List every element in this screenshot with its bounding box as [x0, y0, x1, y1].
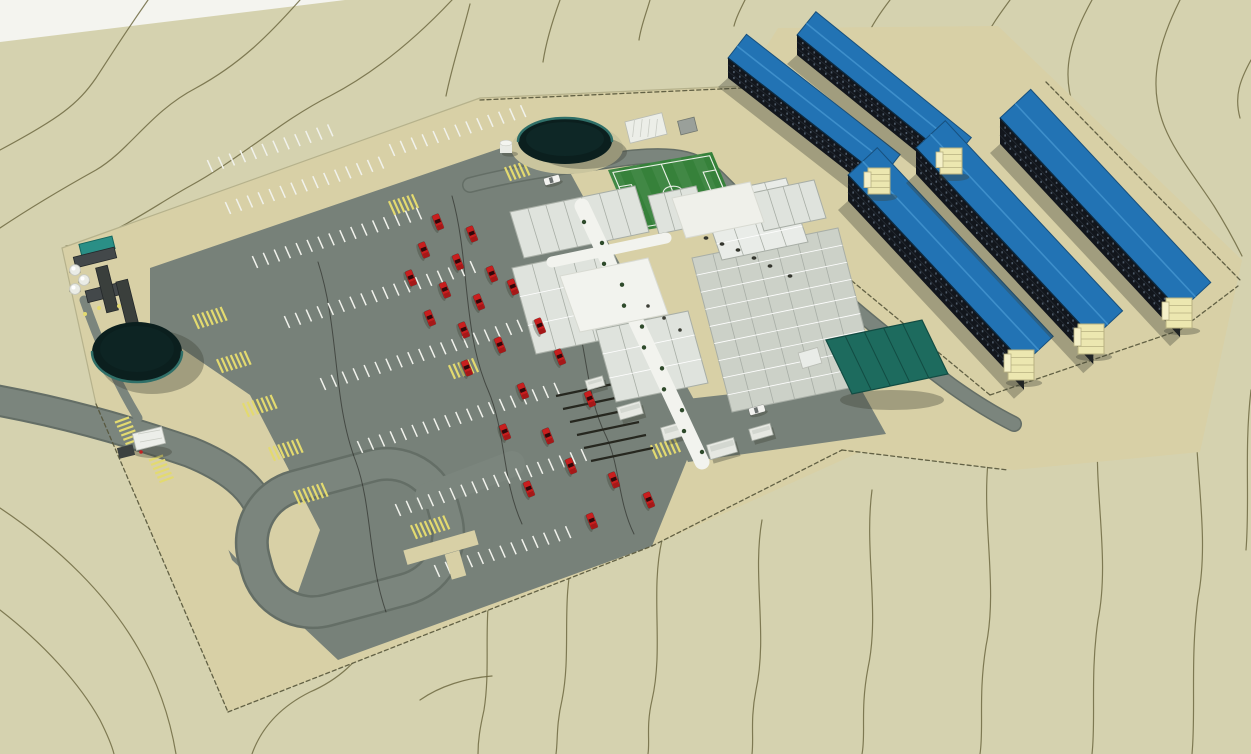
- site-plan-rendering: [0, 0, 1251, 754]
- rendering-canvas: [0, 0, 1251, 754]
